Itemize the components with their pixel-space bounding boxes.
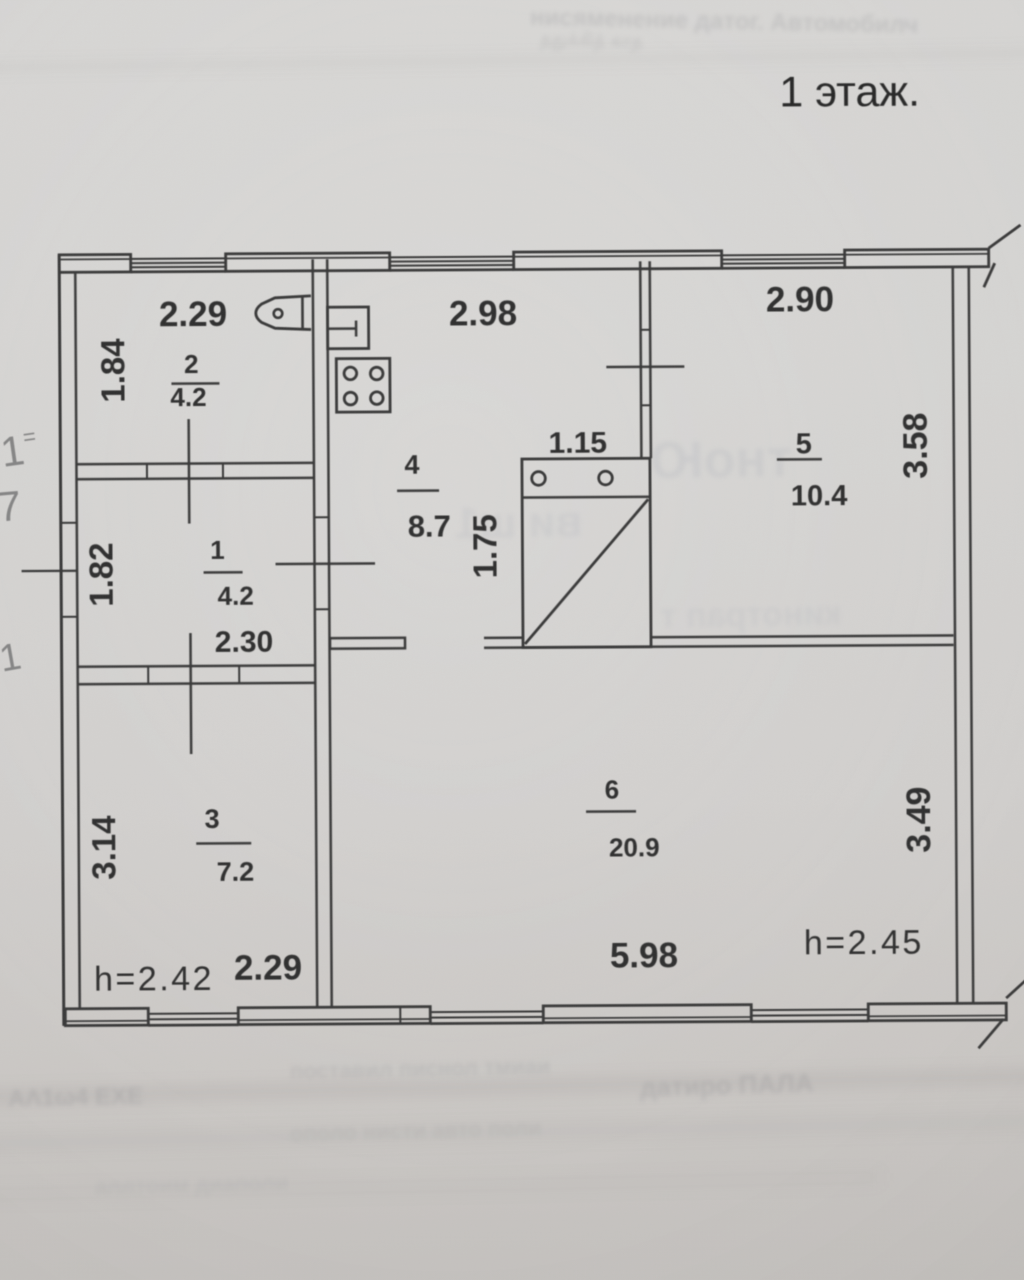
svg-text:20.9: 20.9 bbox=[609, 832, 660, 862]
svg-text:1: 1 bbox=[210, 535, 225, 565]
svg-text:7.2: 7.2 bbox=[217, 857, 255, 887]
svg-text:1.84: 1.84 bbox=[94, 338, 131, 403]
svg-text:3.14: 3.14 bbox=[85, 815, 122, 880]
svg-text:1 этаж.: 1 этаж. bbox=[779, 68, 920, 117]
svg-text:1.75: 1.75 bbox=[466, 514, 503, 578]
svg-text:2.29: 2.29 bbox=[159, 295, 227, 334]
svg-text:3.58: 3.58 bbox=[897, 412, 935, 478]
svg-text:7: 7 bbox=[0, 482, 23, 531]
svg-text:2.29: 2.29 bbox=[234, 948, 302, 987]
svg-text:5: 5 bbox=[796, 428, 812, 460]
svg-text:6: 6 bbox=[605, 774, 620, 804]
svg-text:1.15: 1.15 bbox=[549, 427, 608, 460]
svg-text:h=2.45: h=2.45 bbox=[804, 924, 924, 963]
svg-text:5.98: 5.98 bbox=[610, 936, 678, 975]
svg-text:2.30: 2.30 bbox=[215, 626, 274, 659]
svg-text:10.4: 10.4 bbox=[791, 480, 848, 512]
svg-text:2.90: 2.90 bbox=[766, 280, 834, 319]
svg-text:4: 4 bbox=[404, 450, 419, 480]
svg-text:h=2.42: h=2.42 bbox=[94, 960, 214, 999]
svg-text:1: 1 bbox=[0, 636, 24, 681]
svg-text:3: 3 bbox=[204, 804, 219, 834]
svg-text:2.98: 2.98 bbox=[449, 294, 517, 333]
svg-text:3.49: 3.49 bbox=[900, 786, 938, 852]
svg-text:=: = bbox=[21, 423, 37, 450]
svg-text:8.7: 8.7 bbox=[408, 508, 451, 543]
svg-text:4.2: 4.2 bbox=[170, 382, 206, 412]
svg-text:1.82: 1.82 bbox=[82, 542, 119, 606]
svg-text:2: 2 bbox=[184, 349, 199, 379]
svg-text:4.2: 4.2 bbox=[218, 581, 254, 611]
